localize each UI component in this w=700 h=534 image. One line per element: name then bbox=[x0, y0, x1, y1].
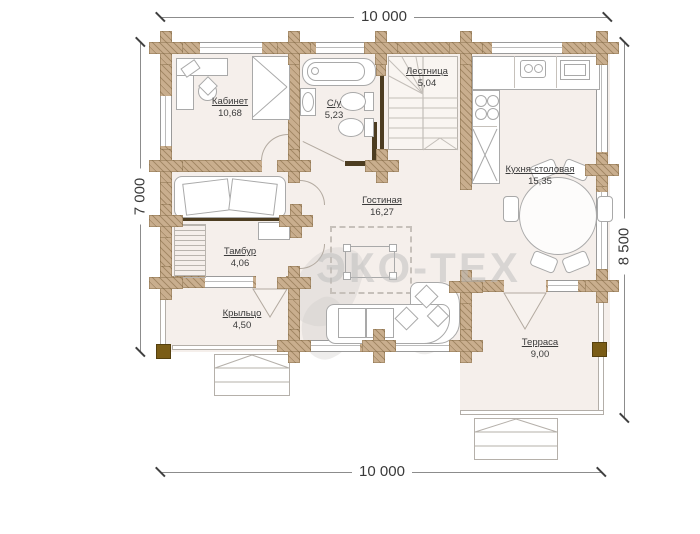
log-joint bbox=[449, 42, 483, 54]
log-joint bbox=[277, 160, 311, 172]
porch-edge bbox=[160, 292, 166, 346]
stove-burner bbox=[487, 95, 499, 107]
terrace-door-swing bbox=[503, 292, 547, 330]
room-name: Крыльцо bbox=[206, 308, 278, 320]
dimension-top: 10 000 bbox=[354, 8, 414, 25]
room-label-tambur: Тамбур 4,06 bbox=[204, 246, 276, 270]
log-joint bbox=[149, 277, 183, 289]
counter-divider bbox=[556, 56, 557, 88]
stove-burner bbox=[487, 108, 499, 120]
kitchen-sink bbox=[524, 64, 533, 73]
bidet-tank bbox=[364, 118, 374, 137]
log-joint bbox=[585, 42, 619, 54]
window bbox=[205, 276, 253, 288]
dimension-bottom: 10 000 bbox=[352, 463, 412, 480]
room-label-terrasa: Терраса 9,00 bbox=[504, 337, 576, 361]
room-label-gostinaya: Гостиная 16,27 bbox=[345, 195, 419, 219]
room-name: Кабинет bbox=[194, 96, 266, 108]
window bbox=[492, 42, 562, 54]
table-leg bbox=[343, 244, 351, 252]
floor-plan: ЭКО-ТЕХ Кабинет 10,68 С/у 5,23 Лестница … bbox=[0, 0, 700, 534]
room-name: Кухня-столовая bbox=[478, 164, 602, 176]
coffee-table bbox=[345, 246, 395, 278]
log-joint bbox=[449, 281, 483, 293]
room-name: Тамбур bbox=[204, 246, 276, 258]
stove-burner bbox=[475, 108, 487, 120]
log-joint bbox=[149, 215, 183, 227]
vestibule-steps bbox=[174, 224, 206, 278]
bathtub-drain bbox=[311, 67, 319, 75]
room-area: 5,23 bbox=[312, 110, 356, 122]
room-area: 4,50 bbox=[206, 320, 278, 332]
door-opening bbox=[504, 280, 546, 292]
counter-divider bbox=[473, 126, 497, 127]
table-leg bbox=[389, 272, 397, 280]
porch-edge bbox=[172, 345, 290, 350]
sofa-cushion bbox=[182, 178, 232, 215]
appliance bbox=[564, 64, 586, 76]
log-joint bbox=[449, 340, 483, 352]
dimension-right: 8 500 bbox=[616, 219, 633, 275]
room-area: 9,00 bbox=[504, 349, 576, 361]
log-joint bbox=[277, 340, 311, 352]
log-joint bbox=[362, 340, 396, 352]
log-joint bbox=[585, 280, 619, 292]
room-label-kuhnya: Кухня-столовая 15,35 bbox=[478, 164, 602, 188]
log-joint bbox=[277, 42, 311, 54]
log-joint bbox=[364, 42, 398, 54]
room-name: Лестница bbox=[390, 66, 464, 78]
room-name: С/у bbox=[312, 98, 356, 110]
sofa-seat bbox=[338, 308, 366, 338]
porch-post bbox=[156, 344, 171, 359]
log-joint bbox=[277, 277, 311, 289]
dining-chair bbox=[597, 196, 613, 222]
log-joint bbox=[365, 160, 399, 172]
window bbox=[316, 42, 368, 54]
room-label-su: С/у 5,23 bbox=[312, 98, 356, 122]
log-joint bbox=[149, 42, 183, 54]
room-label-kabinet: Кабинет 10,68 bbox=[194, 96, 266, 120]
porch-steps bbox=[214, 354, 290, 396]
window bbox=[548, 280, 578, 292]
room-name: Терраса bbox=[504, 337, 576, 349]
room-area: 5,04 bbox=[390, 78, 464, 90]
window bbox=[200, 42, 262, 54]
room-area: 10,68 bbox=[194, 108, 266, 120]
window bbox=[160, 96, 172, 146]
terrace-edge bbox=[460, 410, 604, 415]
table-leg bbox=[343, 272, 351, 280]
dining-table bbox=[519, 177, 597, 255]
room-area: 16,27 bbox=[345, 207, 419, 219]
dining-chair bbox=[503, 196, 519, 222]
sofa-cushion bbox=[228, 178, 278, 215]
room-area: 4,06 bbox=[204, 258, 276, 270]
table-leg bbox=[389, 244, 397, 252]
room-area: 15,35 bbox=[478, 176, 602, 188]
room-label-lestnitsa: Лестница 5,04 bbox=[390, 66, 464, 90]
terrace-post bbox=[592, 342, 607, 357]
dimension-left: 7 000 bbox=[132, 169, 149, 225]
counter-divider bbox=[514, 56, 515, 88]
log-joint bbox=[149, 160, 183, 172]
log-joint bbox=[279, 215, 313, 227]
partition-wall bbox=[380, 76, 384, 154]
kitchen-sink bbox=[534, 64, 543, 73]
stove-burner bbox=[475, 95, 487, 107]
room-name: Гостиная bbox=[345, 195, 419, 207]
room-label-kryltso: Крыльцо 4,50 bbox=[206, 308, 278, 332]
terrace-steps bbox=[474, 418, 558, 460]
